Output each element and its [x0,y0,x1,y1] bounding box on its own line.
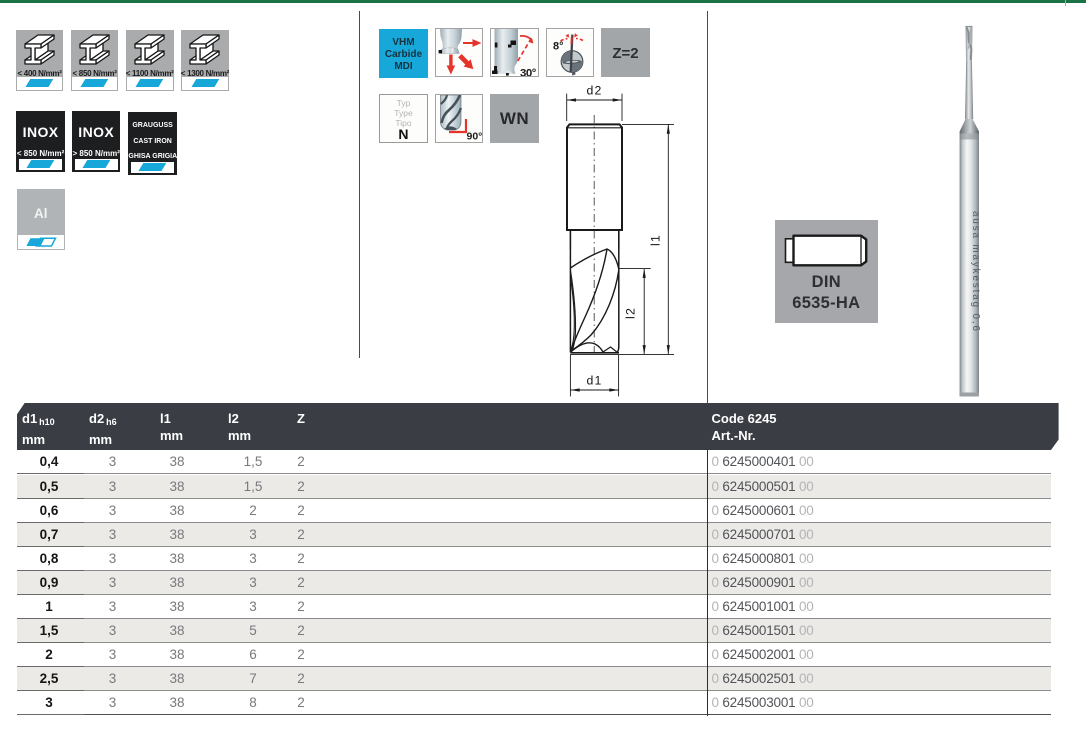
svg-text:l1: l1 [649,234,663,246]
svg-text:ausa maykestag 0,6: ausa maykestag 0,6 [970,211,981,333]
svg-text:90°: 90° [466,131,482,141]
svg-text:d2: d2 [586,84,602,98]
svg-text:30°: 30° [520,68,537,76]
svg-text:l2: l2 [624,307,638,319]
svg-text:d1: d1 [586,374,602,388]
svg-text:8°: 8° [553,41,564,53]
